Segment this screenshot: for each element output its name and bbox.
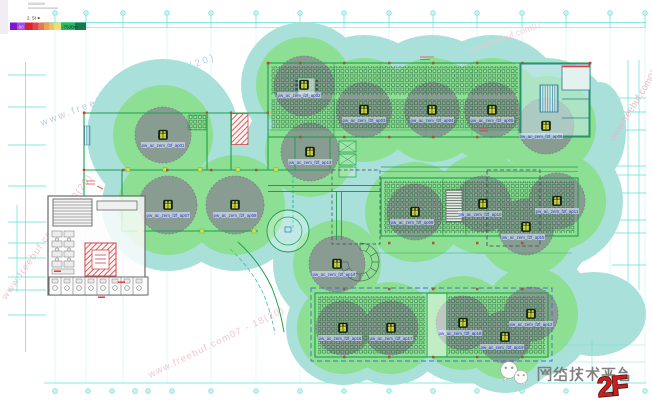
svg-text:pw_ac_zem_f2f_ap04: pw_ac_zem_f2f_ap04	[411, 118, 455, 123]
svg-text:2. 5t ●: 2. 5t ●	[27, 16, 40, 21]
svg-text:pw_ac_zem_f2f_ap10: pw_ac_zem_f2f_ap10	[459, 212, 503, 217]
svg-text:pw_ac_zem_f2f_ap09: pw_ac_zem_f2f_ap09	[391, 220, 435, 225]
svg-text:pw_ac_zem_f2f_ap19: pw_ac_zem_f2f_ap19	[481, 345, 525, 350]
svg-text:pw_ac_zem_f2f_ap05: pw_ac_zem_f2f_ap05	[471, 118, 515, 123]
svg-text:pw_ac_zem_f2f_ap15: pw_ac_zem_f2f_ap15	[502, 235, 546, 240]
svg-text:pw_ac_zem_f2f_ap08: pw_ac_zem_f2f_ap08	[214, 213, 258, 218]
svg-text:pw_ac_zem_f2f_ap13: pw_ac_zem_f2f_ap13	[289, 160, 333, 165]
svg-text:-75dBm: -75dBm	[62, 25, 78, 30]
svg-text:pw_ac_zem_f2f_ap17: pw_ac_zem_f2f_ap17	[370, 336, 414, 341]
svg-text:pw_ac_zem_f2f_ap07: pw_ac_zem_f2f_ap07	[147, 213, 191, 218]
svg-text:pw_ac_zem_f2f_ap16: pw_ac_zem_f2f_ap16	[319, 336, 363, 341]
svg-text:pw_ac_zem_f2f_ap03: pw_ac_zem_f2f_ap03	[343, 118, 387, 123]
svg-text:pw_ac_zem_f2f_ap18: pw_ac_zem_f2f_ap18	[439, 331, 483, 336]
svg-text:pw_ac_zem_f2f_ap12: pw_ac_zem_f2f_ap12	[510, 322, 554, 327]
svg-text:2F: 2F	[596, 369, 630, 402]
svg-text:pw_ac_zem_f2f_ap14: pw_ac_zem_f2f_ap14	[313, 272, 357, 277]
svg-text:-90: -90	[18, 24, 25, 29]
svg-text:pw_ac_zem_f2f_ap01: pw_ac_zem_f2f_ap01	[142, 143, 186, 148]
svg-text:pw_ac_zem_f2f_ap11: pw_ac_zem_f2f_ap11	[536, 209, 579, 214]
svg-text:pw_ac_zem_f2f_ap02: pw_ac_zem_f2f_ap02	[278, 93, 322, 98]
svg-text:pw_ac_zem_f2f_ap06: pw_ac_zem_f2f_ap06	[520, 134, 564, 139]
